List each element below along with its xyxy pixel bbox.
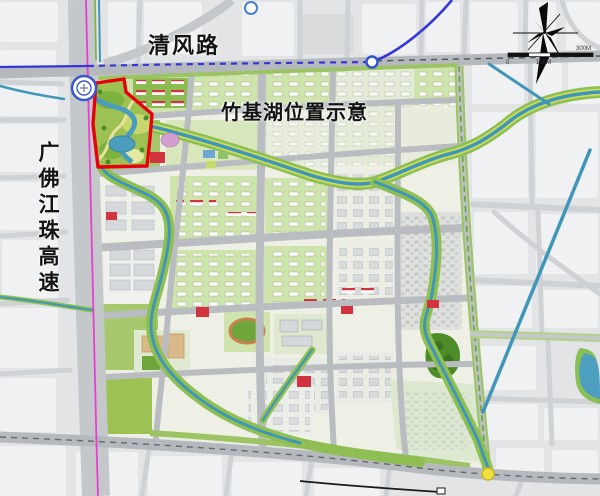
pink-oval-venue	[161, 133, 179, 147]
metro-line-west	[0, 66, 88, 67]
junction-yellow-icon	[482, 468, 494, 480]
junction-node-icon	[245, 2, 257, 14]
scale-end-label: 300M	[576, 46, 591, 52]
label-map-caption: 竹基湖位置示意	[221, 96, 368, 125]
label-expressway: 广佛江珠高速	[32, 141, 62, 297]
interchange-icon	[72, 76, 96, 100]
planning-map-screenshot: 0 150M 300M 清风路 竹基湖位置示意 广佛江珠高速	[0, 0, 600, 496]
metro-station-icon	[367, 57, 378, 68]
road-east-green-verge	[470, 334, 600, 338]
map-canvas: 0 150M 300M	[0, 0, 600, 496]
label-qingfeng-road: 清风路	[148, 28, 220, 60]
scale-mid-label: 150M	[536, 60, 551, 66]
